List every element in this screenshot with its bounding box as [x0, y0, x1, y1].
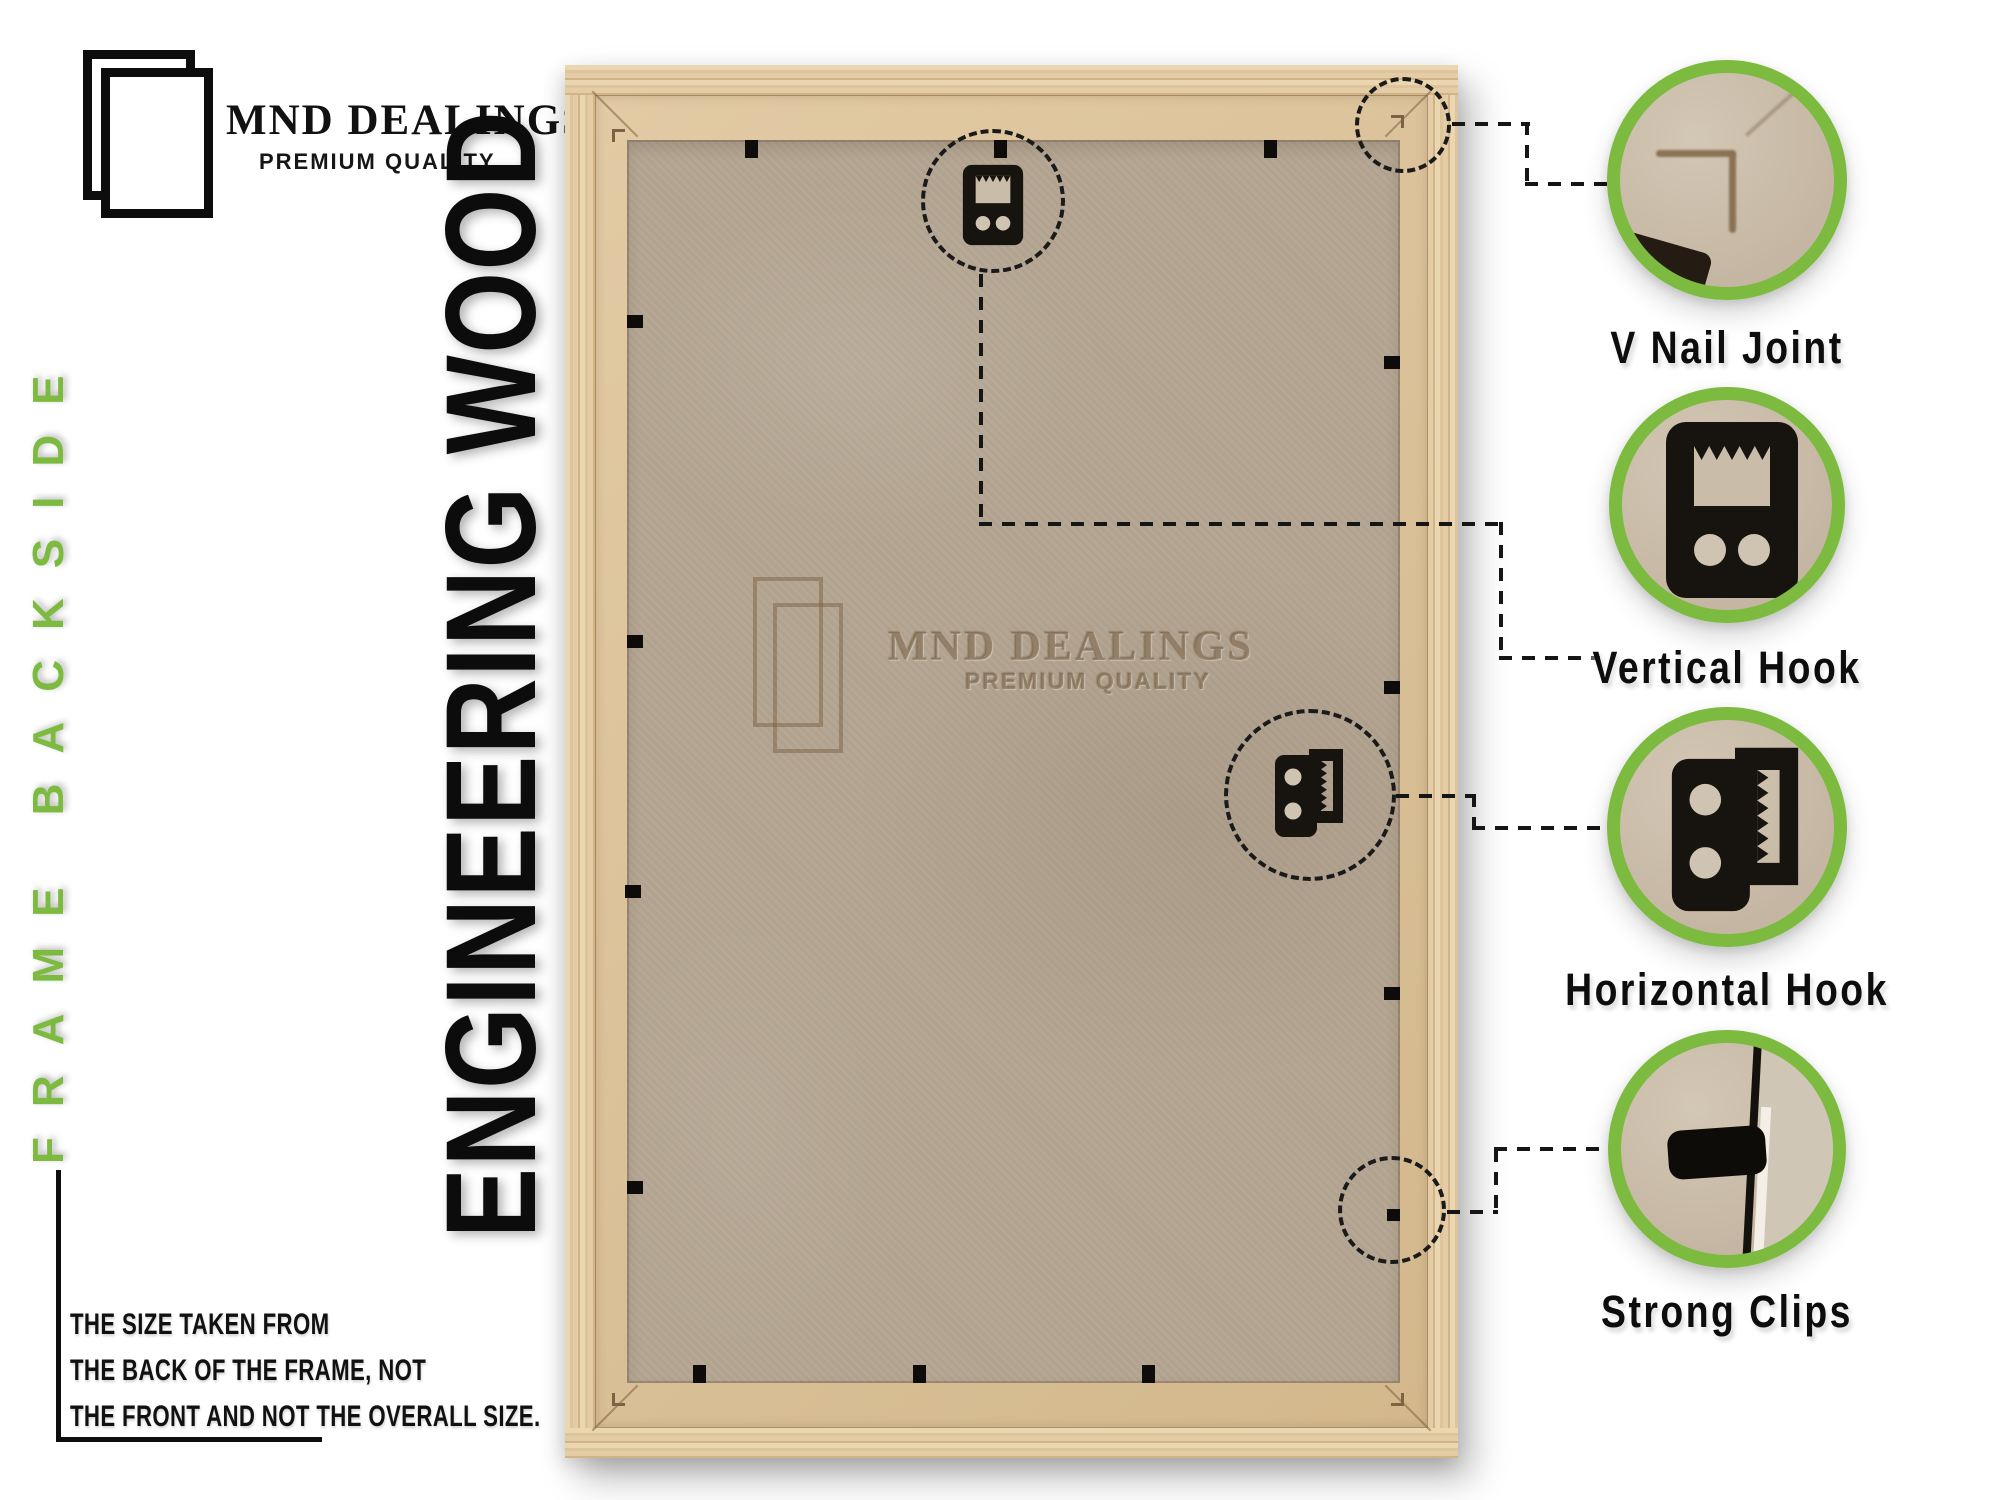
callout-label-v-nail-joint: V Nail Joint [1553, 322, 1902, 374]
horizontal-hook-indicator-circle [1224, 709, 1396, 881]
product-infographic: MND DEALINGS PREMIUM QUALITY FRAME BACKS… [0, 0, 2000, 1500]
note-bracket [56, 1170, 61, 1442]
corner-mark-icon [612, 1393, 625, 1406]
callout-label-vertical-hook: Vertical Hook [1553, 642, 1902, 694]
leader-strong-clips [1494, 1147, 1607, 1151]
clip [1384, 356, 1400, 369]
v-nail-indicator-circle [1355, 77, 1451, 173]
clip [1384, 987, 1400, 1000]
callout-v-nail-joint [1607, 60, 1847, 300]
clip [625, 885, 641, 898]
horizontal-hook-icon [1668, 744, 1802, 926]
callout-strong-clips [1608, 1030, 1846, 1268]
size-note-line: THE FRONT AND NOT THE OVERALL SIZE. [70, 1394, 541, 1440]
strong-clip-indicator-circle [1338, 1156, 1446, 1264]
v-nail-seam [1745, 91, 1795, 137]
vertical-hook-icon [1662, 418, 1802, 602]
leader-strong-clips [1447, 1210, 1498, 1214]
clip [693, 1365, 706, 1383]
callout-label-horizontal-hook: Horizontal Hook [1553, 964, 1902, 1016]
callout-vertical-hook [1609, 387, 1845, 623]
frame-photo: MND DEALINGS PREMIUM QUALITY [565, 65, 1458, 1458]
leader-vertical-hook [979, 522, 1503, 526]
size-note-line: THE SIZE TAKEN FROM [70, 1302, 541, 1348]
corner-mark-icon [612, 129, 625, 142]
watermark-frame-icon [773, 603, 843, 753]
wood-border-top [565, 65, 1458, 95]
logo-frame-front-icon [101, 68, 213, 218]
leader-v-nail [1525, 122, 1529, 186]
size-note: THE SIZE TAKEN FROM THE BACK OF THE FRAM… [70, 1302, 541, 1440]
callout-horizontal-hook [1607, 707, 1847, 947]
callout-label-strong-clips: Strong Clips [1553, 1286, 1902, 1338]
strong-clip-icon [1666, 1124, 1767, 1179]
clip [627, 315, 643, 328]
v-nail-groove [1729, 152, 1736, 233]
clip [627, 635, 643, 648]
watermark-title: MND DEALINGS [888, 623, 1254, 671]
wood-border-bottom [565, 1428, 1458, 1458]
watermark-subtitle: PREMIUM QUALITY [965, 668, 1211, 695]
clip [913, 1365, 926, 1383]
leader-v-nail [1525, 182, 1610, 186]
corner-mark-icon [1391, 1393, 1404, 1406]
leader-strong-clips [1494, 1149, 1498, 1214]
clip [627, 1181, 643, 1194]
leader-horizontal-hook [1396, 794, 1476, 798]
clip [745, 140, 758, 158]
leader-horizontal-hook [1472, 826, 1607, 830]
engineering-wood-label: ENGINEERING WOOD [441, 110, 543, 1238]
vertical-hook-indicator-circle [921, 129, 1065, 273]
v-nail-shadow [1607, 227, 1713, 300]
clip [1384, 681, 1400, 694]
v-nail-groove [1656, 150, 1735, 157]
leader-vertical-hook [1499, 522, 1503, 660]
clip [1142, 1365, 1155, 1383]
leader-horizontal-hook [1472, 794, 1476, 830]
clip [1264, 140, 1277, 158]
frame-backside-label: FRAME BACKSIDE [24, 346, 74, 1164]
leader-v-nail [1452, 122, 1530, 126]
leader-vertical-hook [979, 274, 983, 526]
size-note-line: THE BACK OF THE FRAME, NOT [70, 1348, 541, 1394]
